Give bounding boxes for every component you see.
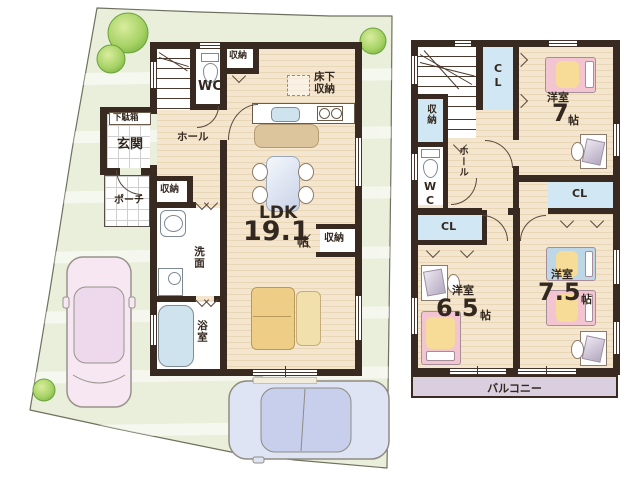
room65-unit: 帖	[480, 310, 491, 322]
closet-ldk-label: 収納	[324, 234, 344, 245]
underfloor-storage-hatch	[287, 75, 310, 96]
wall	[100, 107, 107, 175]
toilet-icon	[421, 149, 440, 158]
window	[455, 40, 471, 47]
room7-size: 7	[552, 101, 569, 126]
pillow	[585, 251, 593, 277]
cl-top-label: CL	[492, 62, 504, 90]
ldk-unit: 帖	[297, 236, 309, 249]
burner-icon	[331, 108, 342, 119]
closet-kitchen-label: 収納	[229, 52, 247, 61]
shoe-cabinet-label: 下駄箱	[113, 114, 139, 123]
pillow	[585, 61, 594, 88]
wall	[141, 168, 157, 175]
wall	[513, 166, 519, 208]
window	[518, 368, 576, 375]
window	[355, 138, 362, 186]
car-blue	[229, 377, 389, 463]
wall	[190, 42, 196, 110]
balcony-label: バルコニー	[487, 382, 542, 395]
window	[613, 250, 620, 284]
washbasin-bowl	[164, 215, 183, 232]
chair	[298, 186, 314, 204]
closet-2f-label: 収納	[425, 104, 435, 125]
wall	[411, 368, 620, 375]
room7-unit: 帖	[568, 115, 579, 127]
window	[411, 56, 418, 84]
chair	[252, 186, 268, 204]
window	[355, 296, 362, 340]
kitchen-island	[254, 124, 319, 148]
room75-unit: 帖	[581, 294, 592, 306]
wall	[411, 94, 443, 99]
wall	[513, 175, 620, 182]
hall-2f-label: ホール	[457, 146, 467, 178]
wall	[443, 147, 448, 208]
room65-size: 6.5	[436, 296, 479, 321]
wall	[513, 215, 520, 368]
terrace-step	[253, 377, 317, 384]
sofa-seam	[253, 316, 291, 317]
chair	[252, 163, 268, 181]
room75-size: 7.5	[538, 280, 581, 305]
wall	[411, 40, 620, 47]
wall	[316, 252, 355, 257]
toilet-icon	[201, 53, 219, 62]
wall	[411, 240, 487, 245]
washer-drum	[168, 272, 181, 285]
bathroom-label: 浴室	[196, 320, 207, 343]
wall	[476, 47, 483, 110]
chair	[298, 163, 314, 181]
kitchen-sink	[271, 107, 300, 122]
cl-left-label: CL	[441, 221, 456, 233]
cl-right-label: CL	[572, 188, 587, 200]
underfloor-label-1: 床下	[314, 72, 335, 83]
underfloor-label-2: 収納	[314, 84, 335, 95]
car-pink	[63, 257, 135, 407]
blanket	[556, 61, 579, 88]
window	[411, 154, 418, 180]
window	[150, 62, 157, 88]
bathtub-icon	[158, 305, 194, 367]
wall	[220, 140, 227, 369]
floor-plan-canvas: WC 収納 床下 収納 下駄箱 玄関 ホール ポーチ 収納 LDK 19.1 帖…	[0, 0, 639, 480]
balcony: バルコニー	[411, 375, 618, 398]
wall	[150, 202, 196, 208]
sofa	[251, 287, 295, 350]
pillow	[426, 351, 455, 361]
window	[613, 124, 620, 156]
washroom-label: 洗面	[193, 246, 204, 269]
laptop-icon	[423, 269, 446, 297]
closet-hall-label: 収納	[160, 185, 179, 195]
wc-label: WC	[198, 80, 222, 94]
window	[411, 298, 418, 334]
ottoman	[296, 291, 321, 346]
wall	[411, 208, 482, 215]
hall-label: ホール	[177, 132, 209, 143]
window	[613, 322, 620, 354]
staircase-2f-run	[445, 110, 476, 138]
wall	[443, 94, 448, 147]
entrance-label: 玄関	[117, 138, 143, 152]
wall	[150, 296, 196, 302]
porch-label: ポーチ	[114, 196, 144, 207]
window	[150, 315, 157, 345]
wall	[411, 142, 443, 147]
burner-icon	[319, 108, 330, 119]
chair	[571, 340, 584, 359]
wall	[150, 42, 157, 62]
wall	[253, 42, 259, 74]
window	[549, 40, 577, 47]
wc-2f-label: WC	[424, 180, 436, 208]
chair	[571, 142, 584, 161]
bed	[545, 57, 596, 93]
window	[450, 368, 506, 375]
window	[200, 42, 220, 49]
wall	[508, 208, 520, 215]
wall	[548, 208, 613, 214]
